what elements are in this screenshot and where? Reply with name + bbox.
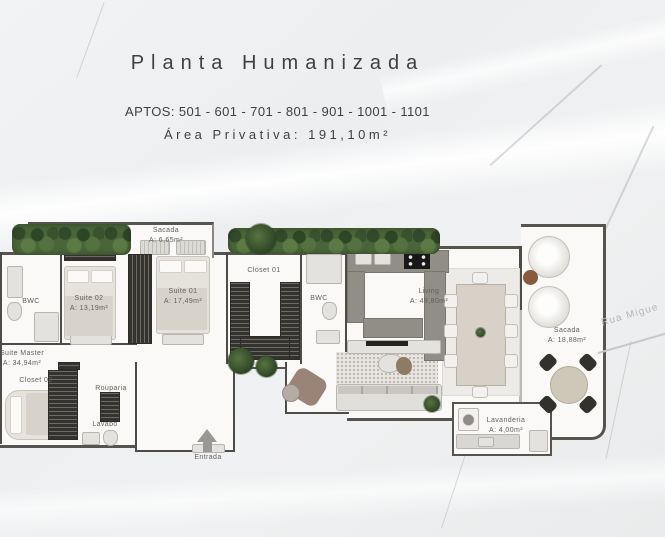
label-sacada-right: Sacada A: 18,88m² [536,326,598,346]
label-living: Living A: 49,80m² [398,287,460,307]
kitchen-counter-left [347,271,365,323]
wall-hall-bottom-left [135,450,193,452]
label-lavanderia: Lavanderia A: 4,00m² [474,416,538,436]
label-sacada-top: Sacada A: 6,65m² [134,226,198,246]
kitchen-sink [355,253,372,265]
suite01-pillow [184,260,207,273]
marble-vein [606,341,632,459]
room-name: Suite Master [0,350,44,357]
coffee-table-wood [396,357,412,375]
dining-chair [504,294,518,308]
label-closet02: Closet 02 [8,376,64,386]
label-closet01: Closet 01 [232,266,296,276]
sofa-back-cushions [338,386,438,394]
suite-master-blanket [26,393,49,435]
wardrobe-between-suites [128,254,152,344]
entrance-arrow-stem [203,441,212,452]
hall-plant [228,348,254,374]
wall-living-ext-bottom [285,412,349,414]
hedge-top-left [12,224,131,255]
room-name: Suite 01 [169,288,198,295]
living-plant [424,396,440,412]
private-area-line: Área Privativa: 191,10m² [50,127,505,142]
potted-tree [246,224,276,254]
dining-chair [444,324,458,338]
entry-hall-floor [135,364,235,450]
wall-left-edge [0,252,2,444]
dining-chair [472,272,488,284]
hall-plant [256,356,277,377]
room-name: Closet 02 [19,377,52,384]
page-title: Planta Humanizada [50,52,505,75]
rouparia-shelves [100,392,120,422]
bwc-left-sink [7,266,23,298]
tv-screen [366,341,408,346]
label-suite02: Suite 02 A: 13,19m² [58,294,120,314]
room-name: Sacada [153,227,179,234]
lavabo-sink [82,432,100,445]
room-area: A: 17,49m² [164,298,202,305]
room-name: Lavanderia [487,417,526,424]
room-area: A: 6,65m² [149,237,183,244]
dining-chair [444,354,458,368]
round-lounge-chair [528,286,570,328]
room-area: A: 13,19m² [70,305,108,312]
apartments-line: APTOS: 501 - 601 - 701 - 801 - 901 - 100… [50,104,505,119]
label-suite01: Suite 01 A: 17,49m² [152,287,214,307]
cooktop [404,252,430,269]
bwc-mid-shower [306,254,342,284]
suite01-pillow [159,260,182,273]
room-area: A: 4,00m² [489,427,523,434]
label-entrada: Entrada [184,453,232,463]
label-lavabo: Lavabo [80,420,130,430]
room-name: BWC [22,298,40,305]
bwc-mid-sink [316,330,340,344]
street-name: Rua Migue [600,302,660,329]
room-name: Sacada [554,327,580,334]
wall-closet-bwc [300,252,302,364]
room-name: Lavabo [92,421,117,428]
room-area: A: 49,80m² [410,298,448,305]
dining-chair [504,324,518,338]
rouparia-wardrobe [58,362,80,370]
room-area: A: 18,88m² [548,337,586,344]
room-name: Living [419,288,440,295]
suite-master-pillow [10,396,22,434]
wall-hall-bottom-right [224,450,235,452]
marble-streak [0,450,665,537]
room-name: Suite 02 [75,295,104,302]
kitchen-sink [374,253,391,265]
suite01-bench [162,334,204,345]
room-name: Rouparia [95,385,127,392]
wall-suite01-closet [226,252,228,364]
room-area: A: 34,94m² [3,360,41,367]
room-name: Closet 01 [247,267,280,274]
label-suite-master: Suite Master A: 34,94m² [0,349,60,369]
label-bwc-mid: BWC [296,294,342,304]
room-name: Entrada [194,454,221,461]
label-bwc-left: BWC [10,297,52,307]
kitchen-island [363,318,423,338]
dining-chair [504,354,518,368]
ottoman [282,384,300,402]
laundry-sink [478,437,494,447]
bwc-mid-toilet [322,302,337,320]
room-name: BWC [310,295,328,302]
round-side-table [523,270,538,285]
lavabo-toilet [103,430,118,446]
bwc-left-shower [34,312,59,342]
label-rouparia: Rouparia [84,384,138,394]
suite02-pillow [67,270,89,283]
wall-bedrooms-master [0,343,137,345]
suite02-pillow [91,270,113,283]
sacada-round-table [550,366,588,404]
floor-plan-page: Planta Humanizada APTOS: 501 - 601 - 701… [0,0,665,537]
wall-hall-left [135,362,137,452]
table-centerpiece [476,328,485,337]
dining-chair [472,386,488,398]
wall-hall-right [233,362,235,452]
